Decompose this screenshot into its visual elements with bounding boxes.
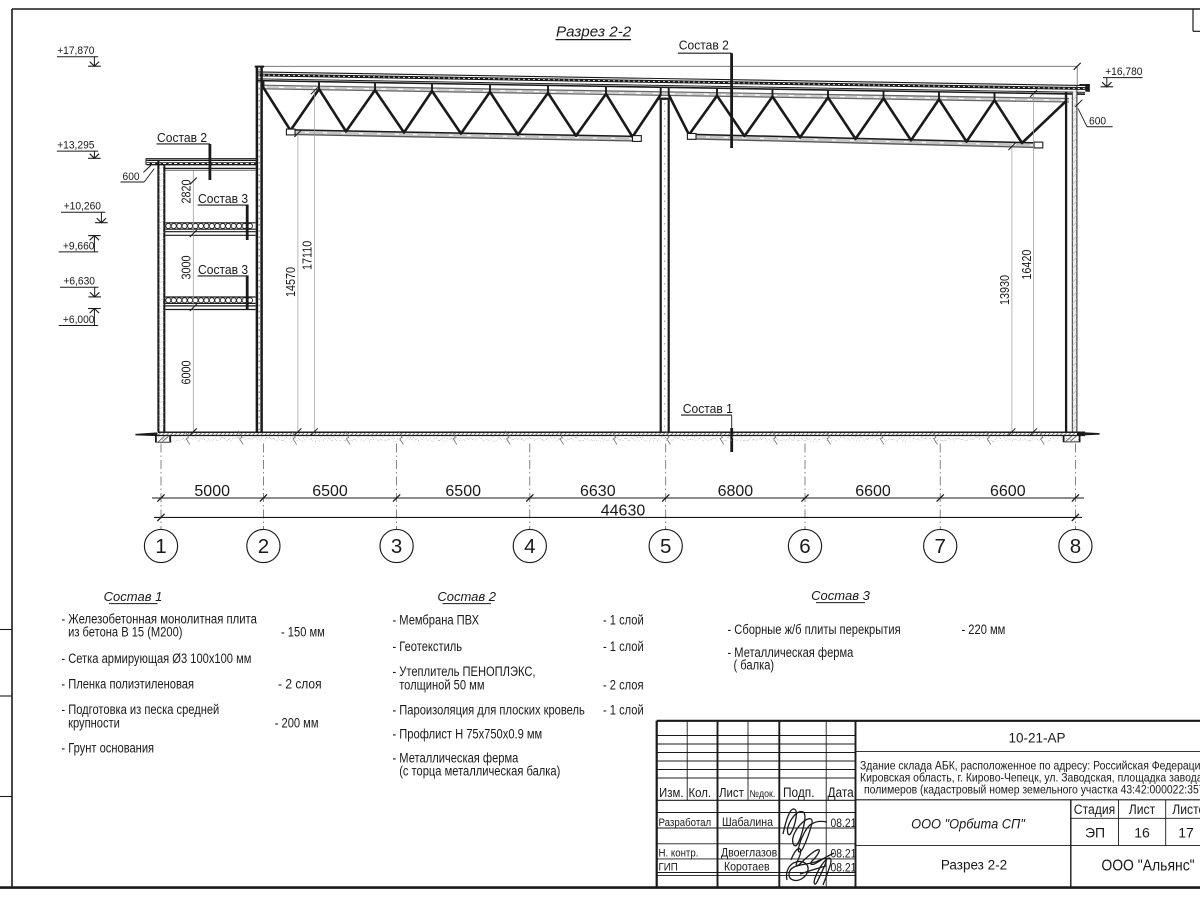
svg-text:2: 2	[258, 535, 269, 558]
svg-text:- Мембрана ПВХ: - Мембрана ПВХ	[393, 613, 480, 628]
svg-text:2820: 2820	[179, 180, 194, 204]
svg-text:Изм.: Изм.	[659, 785, 684, 800]
svg-text:Коротаев: Коротаев	[724, 859, 770, 873]
svg-text:600: 600	[1089, 116, 1106, 128]
svg-text:Подп.: Подп.	[783, 785, 815, 800]
svg-text:17110: 17110	[300, 241, 315, 270]
svg-text:6600: 6600	[990, 483, 1026, 500]
svg-text:- Пароизоляция для плоских кро: - Пароизоляция для плоских кровель	[393, 702, 585, 717]
svg-text:+17,870: +17,870	[57, 45, 94, 57]
svg-text:Дата: Дата	[828, 785, 855, 800]
svg-text:6500: 6500	[312, 483, 348, 500]
svg-text:Состав 2: Состав 2	[157, 130, 207, 145]
svg-text:08.21: 08.21	[831, 863, 857, 875]
svg-text:Листов: Листов	[1172, 802, 1200, 817]
svg-text:Состав 3: Состав 3	[198, 191, 248, 206]
svg-text:1: 1	[155, 535, 166, 558]
svg-text:6000: 6000	[179, 361, 194, 385]
svg-text:Состав 3: Состав 3	[198, 262, 248, 277]
svg-text:Шабалина: Шабалина	[722, 815, 773, 829]
svg-text:- 2 слоя: - 2 слоя	[278, 677, 322, 692]
svg-text:Состав 2: Состав 2	[679, 38, 729, 53]
svg-text:толщиной 50 мм: толщиной 50 мм	[399, 677, 484, 692]
svg-text:5: 5	[660, 535, 671, 558]
svg-text:- 2 слоя: - 2 слоя	[603, 677, 644, 692]
svg-text:+9,660: +9,660	[63, 240, 95, 252]
svg-text:44630: 44630	[601, 502, 646, 519]
svg-text:10-21-АР: 10-21-АР	[1008, 730, 1065, 745]
svg-text:Кол.: Кол.	[689, 785, 712, 800]
svg-text:ООО "Орбита СП": ООО "Орбита СП"	[911, 817, 1026, 832]
svg-text:600: 600	[123, 171, 140, 183]
svg-text:- Грунт основания: - Грунт основания	[61, 741, 154, 756]
svg-text:Разрез 2-2: Разрез 2-2	[556, 24, 632, 41]
svg-text:17: 17	[1178, 825, 1194, 841]
svg-text:Лист: Лист	[719, 785, 744, 800]
svg-text:+6,000: +6,000	[63, 314, 95, 326]
svg-text:5000: 5000	[194, 483, 230, 500]
svg-text:Лист: Лист	[1129, 802, 1155, 817]
svg-text:из бетона В 15 (М200): из бетона В 15 (М200)	[68, 625, 182, 640]
svg-text:+10,260: +10,260	[64, 201, 101, 213]
svg-text:6630: 6630	[580, 483, 616, 500]
svg-text:16: 16	[1134, 825, 1150, 841]
svg-text:крупности: крупности	[68, 715, 120, 730]
svg-text:ГИП: ГИП	[659, 861, 678, 873]
svg-text:- Геотекстиль: - Геотекстиль	[393, 639, 463, 654]
svg-text:6600: 6600	[855, 483, 891, 500]
svg-text:Состав 1: Состав 1	[104, 589, 163, 604]
svg-text:Разрез 2-2: Разрез 2-2	[941, 857, 1007, 872]
svg-text:- 1 слой: - 1 слой	[603, 702, 644, 717]
svg-text:(с торца металлическая балка): (с торца металлическая балка)	[399, 764, 560, 779]
svg-text:Состав 2: Состав 2	[437, 589, 496, 604]
svg-text:- Сетка армирующая Ø3 100х100: - Сетка армирующая Ø3 100х100 мм	[61, 651, 251, 666]
svg-text:3000: 3000	[179, 256, 194, 280]
svg-text:полимеров (кадастровый номер з: полимеров (кадастровый номер земельного …	[864, 783, 1200, 797]
svg-text:- Пленка полиэтиленовая: - Пленка полиэтиленовая	[61, 677, 194, 692]
svg-text:13930: 13930	[997, 275, 1012, 305]
svg-text:08.21: 08.21	[831, 849, 857, 861]
svg-text:- 220 мм: - 220 мм	[962, 622, 1006, 637]
svg-text:Стадия: Стадия	[1074, 802, 1115, 817]
svg-text:- Сборные ж/б плиты перекрытия: - Сборные ж/б плиты перекрытия	[728, 622, 901, 637]
svg-text:3: 3	[391, 535, 402, 558]
svg-text:Разработал: Разработал	[659, 817, 712, 829]
svg-text:4: 4	[524, 535, 535, 558]
svg-text:Н. контр.: Н. контр.	[659, 847, 699, 859]
svg-text:- 1 слой: - 1 слой	[603, 613, 644, 628]
svg-text:Состав 3: Состав 3	[811, 588, 870, 603]
svg-text:ЭП: ЭП	[1085, 825, 1105, 841]
svg-text:- Профлист Н 75х750х0.9 мм: - Профлист Н 75х750х0.9 мм	[393, 726, 543, 741]
svg-text:ООО "Альянс": ООО "Альянс"	[1101, 857, 1194, 874]
svg-text:- 200 мм: - 200 мм	[275, 715, 319, 730]
svg-text:+16,780: +16,780	[1105, 66, 1142, 78]
svg-text:8: 8	[1070, 535, 1081, 558]
svg-text:№док.: №док.	[750, 789, 776, 800]
svg-text:6: 6	[799, 535, 810, 558]
svg-text:Состав 1: Состав 1	[683, 401, 733, 416]
svg-text:6500: 6500	[445, 483, 481, 500]
svg-text:08.21: 08.21	[831, 818, 857, 830]
svg-text:( балка): ( балка)	[734, 658, 775, 673]
svg-text:+6,630: +6,630	[63, 276, 95, 288]
svg-text:7: 7	[934, 535, 945, 558]
svg-text:- 1 слой: - 1 слой	[603, 639, 644, 654]
svg-text:14570: 14570	[283, 267, 298, 297]
svg-text:16420: 16420	[1019, 250, 1034, 280]
svg-text:6800: 6800	[718, 483, 754, 500]
svg-text:- 150 мм: - 150 мм	[281, 625, 325, 640]
svg-text:+13,295: +13,295	[57, 140, 94, 152]
svg-text:Двоеглазов: Двоеглазов	[721, 845, 777, 859]
